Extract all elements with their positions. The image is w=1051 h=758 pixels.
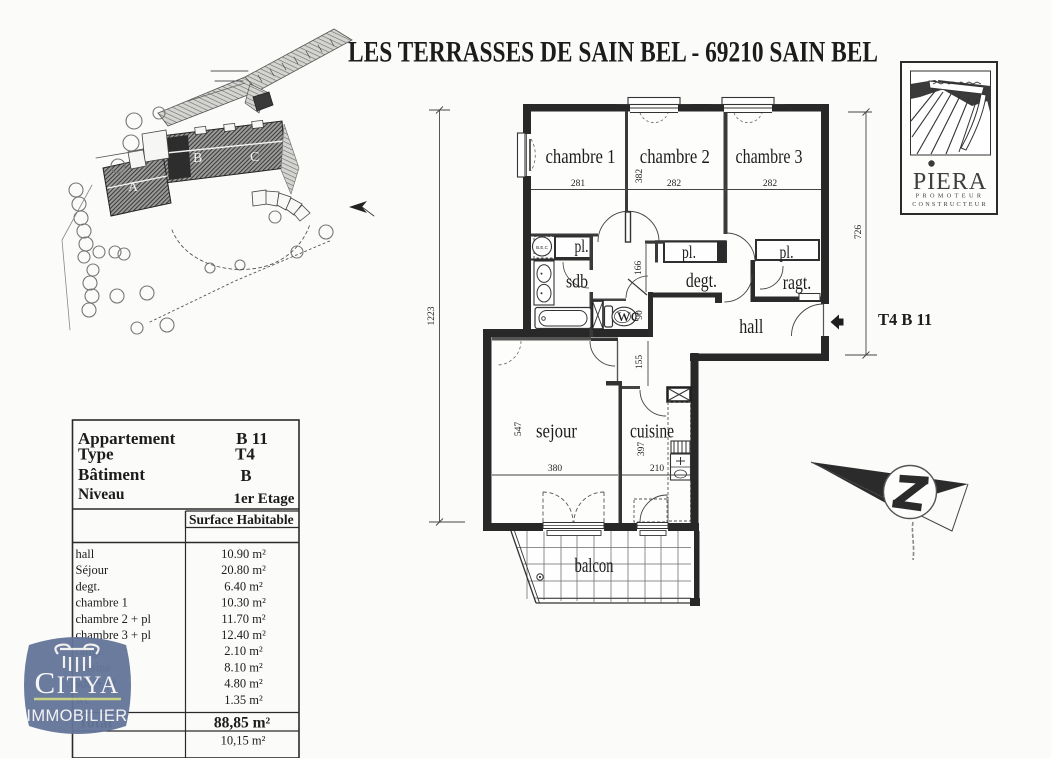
svg-text:88,85 m²: 88,85 m² <box>214 715 271 732</box>
svg-text:chambre 2: chambre 2 <box>640 146 710 168</box>
svg-text:A: A <box>128 180 139 195</box>
svg-text:PROMOTEUR: PROMOTEUR <box>916 193 985 200</box>
svg-text:balcon: balcon <box>575 555 614 577</box>
svg-text:1223: 1223 <box>427 306 437 325</box>
svg-text:20.80 m²: 20.80 m² <box>221 563 266 577</box>
svg-text:12.40 m²: 12.40 m² <box>221 628 266 642</box>
svg-text:ragt.: ragt. <box>783 272 812 294</box>
svg-text:Type: Type <box>78 445 114 464</box>
svg-text:degt.: degt. <box>76 579 101 593</box>
svg-text:T4 B 11: T4 B 11 <box>878 310 932 329</box>
svg-text:IMMOBILIER: IMMOBILIER <box>26 707 127 725</box>
svg-text:10,15 m²: 10,15 m² <box>221 734 266 748</box>
svg-text:cuisine: cuisine <box>630 421 674 443</box>
svg-text:B.E.C: B.E.C <box>536 245 549 250</box>
svg-text:2.10 m²: 2.10 m² <box>224 644 263 658</box>
svg-text:B: B <box>193 151 202 166</box>
svg-text:397: 397 <box>637 442 647 457</box>
svg-text:210: 210 <box>650 464 665 474</box>
svg-text:281: 281 <box>571 179 586 189</box>
svg-text:166: 166 <box>634 261 644 276</box>
svg-text:LES TERRASSES DE SAIN BEL - 69: LES TERRASSES DE SAIN BEL - 69210 SAIN B… <box>348 35 878 68</box>
svg-text:1.35 m²: 1.35 m² <box>224 693 263 707</box>
svg-text:90: 90 <box>635 310 645 320</box>
svg-text:382: 382 <box>635 169 645 184</box>
svg-text:CONSTRUCTEUR: CONSTRUCTEUR <box>912 201 988 208</box>
svg-text:6.40 m²: 6.40 m² <box>224 579 263 593</box>
svg-text:pl.: pl. <box>575 236 589 256</box>
svg-text:10.30 m²: 10.30 m² <box>221 596 266 610</box>
svg-text:10.90 m²: 10.90 m² <box>221 547 266 561</box>
svg-text:155: 155 <box>635 355 645 370</box>
svg-text:547: 547 <box>514 422 524 437</box>
svg-text:hall: hall <box>76 547 95 561</box>
svg-text:pl.: pl. <box>780 242 794 262</box>
svg-text:Séjour: Séjour <box>76 563 109 577</box>
svg-text:4.80 m²: 4.80 m² <box>224 677 263 691</box>
svg-text:chambre 2 + pl: chambre 2 + pl <box>76 612 152 626</box>
svg-text:B: B <box>240 466 251 485</box>
svg-text:282: 282 <box>667 179 682 189</box>
svg-text:Bâtiment: Bâtiment <box>78 465 145 484</box>
svg-text:C: C <box>250 150 259 165</box>
svg-text:PIERA: PIERA <box>913 169 987 195</box>
svg-text:Niveau: Niveau <box>78 486 125 503</box>
svg-text:8.10 m²: 8.10 m² <box>224 660 263 674</box>
svg-text:degt.: degt. <box>686 270 717 292</box>
svg-text:chambre 1: chambre 1 <box>76 596 128 610</box>
svg-text:Surface Habitable: Surface Habitable <box>189 512 294 527</box>
svg-text:11.70 m²: 11.70 m² <box>221 612 266 626</box>
svg-text:pl.: pl. <box>682 242 696 262</box>
svg-text:380: 380 <box>548 464 563 474</box>
svg-text:sdb: sdb <box>566 272 588 293</box>
svg-text:sejour: sejour <box>536 421 577 443</box>
svg-text:726: 726 <box>854 225 864 240</box>
svg-text:282: 282 <box>763 179 778 189</box>
svg-text:hall: hall <box>739 316 763 338</box>
svg-text:1er Etage: 1er Etage <box>234 491 295 507</box>
svg-text:T4: T4 <box>235 445 255 464</box>
svg-text:chambre 3: chambre 3 <box>736 146 803 168</box>
svg-text:chambre 1: chambre 1 <box>546 146 616 168</box>
